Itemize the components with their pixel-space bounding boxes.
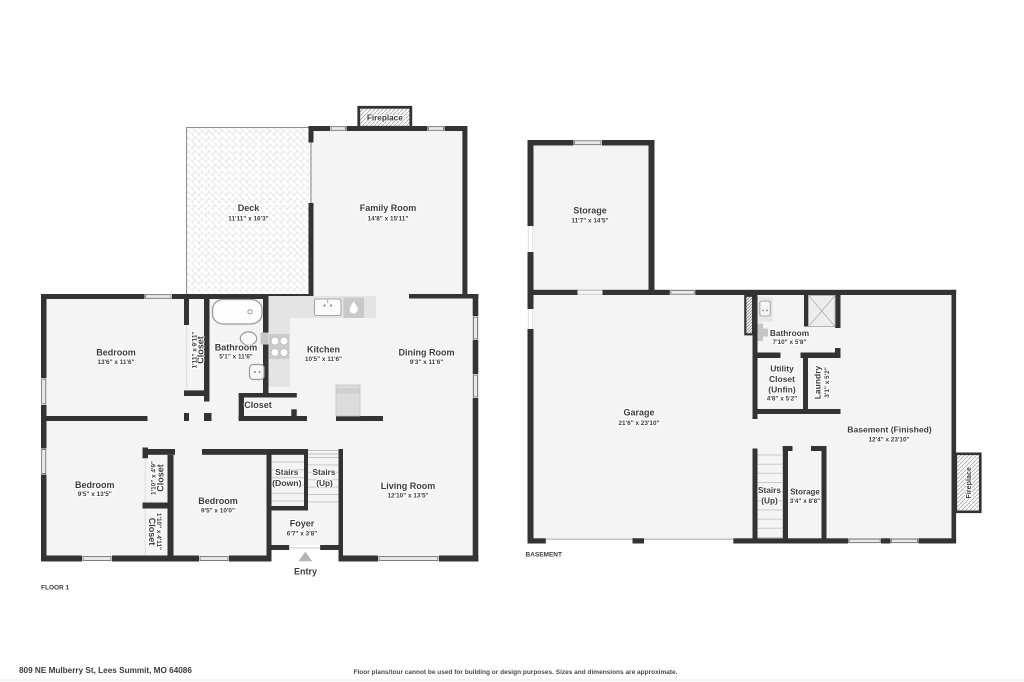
- svg-text:Stairs: Stairs: [758, 485, 781, 495]
- svg-text:Living Room: Living Room: [381, 481, 436, 491]
- svg-text:9'5" x 13'5": 9'5" x 13'5": [78, 491, 112, 498]
- svg-text:9'3" x 11'6": 9'3" x 11'6": [410, 359, 444, 366]
- svg-text:Storage: Storage: [573, 206, 607, 216]
- svg-text:Family Room: Family Room: [360, 203, 417, 213]
- svg-text:Laundry: Laundry: [812, 365, 822, 399]
- svg-text:Utility: Utility: [770, 364, 794, 374]
- svg-text:Storage: Storage: [790, 488, 820, 497]
- svg-text:Fireplace: Fireplace: [367, 114, 403, 123]
- svg-text:21'6" x 23'10": 21'6" x 23'10": [618, 420, 659, 427]
- svg-text:4'8" x 5'2": 4'8" x 5'2": [767, 396, 797, 403]
- svg-text:3'4" x 8'8": 3'4" x 8'8": [790, 498, 820, 505]
- svg-text:Bathroom: Bathroom: [215, 343, 258, 353]
- svg-text:Entry: Entry: [294, 566, 317, 576]
- svg-text:Basement (Finished): Basement (Finished): [847, 425, 932, 435]
- svg-text:(Up): (Up): [761, 496, 778, 506]
- svg-text:14'8" x 15'11": 14'8" x 15'11": [368, 216, 409, 223]
- svg-text:5'1" x 11'6": 5'1" x 11'6": [219, 354, 253, 361]
- svg-text:Stairs: Stairs: [275, 467, 298, 477]
- svg-text:6'7" x 3'8": 6'7" x 3'8": [287, 531, 317, 538]
- svg-text:Garage: Garage: [623, 408, 654, 418]
- svg-text:Fireplace: Fireplace: [964, 467, 973, 499]
- svg-text:(Up): (Up): [316, 478, 333, 488]
- svg-text:1'11" x 9'11": 1'11" x 9'11": [191, 332, 198, 369]
- svg-text:Closet: Closet: [769, 374, 795, 384]
- svg-text:BASEMENT: BASEMENT: [526, 552, 563, 559]
- svg-text:Deck: Deck: [238, 203, 261, 213]
- svg-text:809 NE Mulberry St, Lees Summi: 809 NE Mulberry St, Lees Summit, MO 6408…: [19, 666, 192, 675]
- svg-text:11'7" x 14'5": 11'7" x 14'5": [571, 218, 608, 225]
- svg-text:13'6" x 11'6": 13'6" x 11'6": [97, 359, 134, 366]
- svg-text:Bedroom: Bedroom: [198, 496, 238, 506]
- svg-text:Kitchen: Kitchen: [307, 345, 340, 355]
- svg-text:10'5" x 11'6": 10'5" x 11'6": [305, 356, 342, 363]
- svg-text:FLOOR 1: FLOOR 1: [41, 585, 70, 592]
- svg-text:9'5" x 10'0": 9'5" x 10'0": [201, 507, 235, 514]
- svg-text:Bedroom: Bedroom: [96, 348, 136, 358]
- svg-text:Dining Room: Dining Room: [399, 348, 455, 358]
- svg-text:3'1" x 5'2": 3'1" x 5'2": [824, 367, 831, 397]
- svg-text:12'10" x 13'5": 12'10" x 13'5": [387, 493, 428, 500]
- svg-text:12'4" x 23'10": 12'4" x 23'10": [868, 437, 909, 444]
- svg-text:11'11" x 16'3": 11'11" x 16'3": [228, 215, 268, 222]
- svg-text:(Down): (Down): [272, 478, 302, 488]
- svg-text:(Unfin): (Unfin): [768, 385, 796, 395]
- svg-text:1'10" x 4'11": 1'10" x 4'11": [155, 513, 162, 550]
- svg-text:Bedroom: Bedroom: [75, 480, 115, 490]
- svg-text:Foyer: Foyer: [290, 519, 315, 529]
- svg-text:1'10" x 4'9": 1'10" x 4'9": [151, 461, 158, 495]
- svg-text:Closet: Closet: [244, 400, 272, 410]
- svg-text:Bathroom: Bathroom: [770, 328, 809, 338]
- svg-text:Stairs: Stairs: [312, 467, 335, 477]
- svg-text:7'10" x 5'8": 7'10" x 5'8": [773, 339, 807, 346]
- svg-text:Floor plans/tour cannot be use: Floor plans/tour cannot be used for buil…: [354, 669, 678, 676]
